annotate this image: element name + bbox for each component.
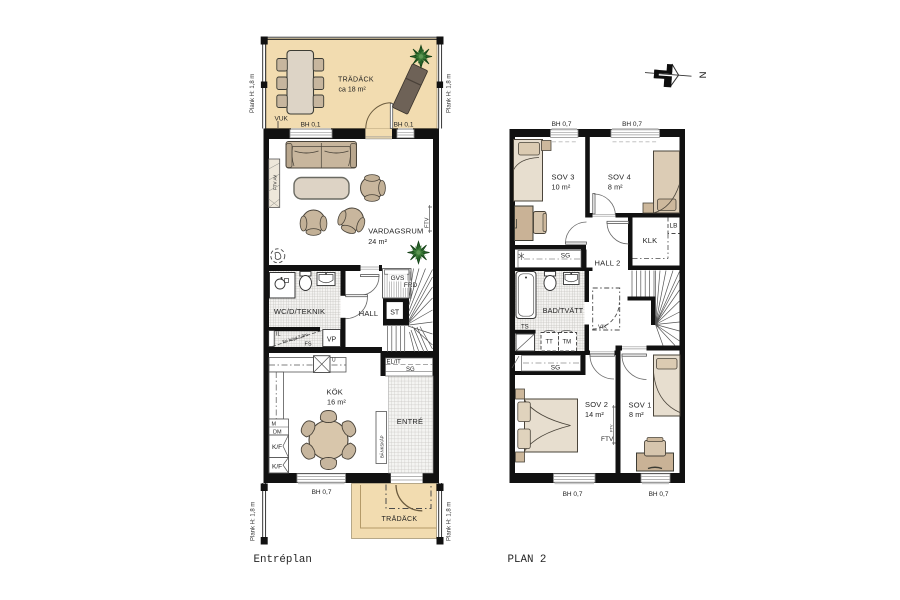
svg-text:TRÄDÄCK: TRÄDÄCK [382, 515, 418, 523]
svg-text:ST: ST [390, 310, 400, 317]
svg-text:KÖK: KÖK [327, 388, 343, 397]
svg-text:U: U [332, 358, 336, 364]
svg-text:LB: LB [670, 223, 678, 230]
svg-text:BH 0,7: BH 0,7 [312, 489, 332, 496]
svg-text:M: M [272, 422, 277, 428]
svg-text:FTV: FTV [609, 424, 614, 432]
svg-text:10 m²: 10 m² [552, 183, 571, 192]
svg-text:SG: SG [561, 253, 570, 260]
svg-text:Plank H: 1,8 m: Plank H: 1,8 m [251, 502, 257, 541]
svg-text:ca 18 m²: ca 18 m² [339, 87, 367, 94]
svg-text:SOV 2: SOV 2 [585, 400, 608, 409]
svg-text:HALL: HALL [359, 309, 379, 318]
svg-text:VUK: VUK [275, 116, 289, 123]
svg-text:VP: VP [327, 336, 337, 343]
svg-text:TRÄDÄCK: TRÄDÄCK [338, 76, 374, 84]
svg-text:FS: FS [304, 342, 311, 348]
svg-text:IL: IL [276, 332, 281, 338]
svg-text:BH 0,7: BH 0,7 [622, 121, 642, 128]
svg-text:FTV: FTV [425, 217, 431, 228]
svg-text:VARDAGSRUM: VARDAGSRUM [368, 227, 423, 236]
svg-text:SG: SG [406, 367, 415, 373]
svg-text:BH 0,1: BH 0,1 [301, 122, 321, 129]
svg-text:KLK: KLK [643, 236, 658, 245]
svg-text:BH 0,7: BH 0,7 [563, 491, 583, 498]
svg-text:BÄNKSKÅP: BÄNKSKÅP [380, 435, 385, 458]
svg-text:Plank H: 1,8 m: Plank H: 1,8 m [250, 74, 256, 113]
svg-text:SOV 3: SOV 3 [552, 173, 575, 182]
svg-text:SG: SG [551, 365, 560, 372]
svg-text:BAD/TVÄTT: BAD/TVÄTT [543, 306, 584, 315]
svg-text:SOV 1: SOV 1 [629, 401, 652, 410]
svg-text:K/F: K/F [272, 464, 282, 471]
svg-text:BH 0,7: BH 0,7 [649, 491, 669, 498]
svg-text:TM: TM [563, 340, 572, 346]
svg-text:Plank H: 1,8 m: Plank H: 1,8 m [447, 74, 453, 113]
svg-text:TS: TS [521, 325, 529, 331]
svg-text:K/F: K/F [272, 444, 282, 451]
svg-text:24 m²: 24 m² [368, 237, 387, 246]
svg-text:14 m²: 14 m² [585, 410, 604, 419]
svg-text:VIK: VIK [598, 325, 607, 331]
svg-text:WC/D/TEKNIK: WC/D/TEKNIK [274, 307, 325, 316]
svg-text:N: N [697, 72, 708, 79]
svg-text:Plank H: 1,8 m: Plank H: 1,8 m [447, 502, 453, 541]
svg-text:ENTRÉ: ENTRÉ [397, 417, 423, 426]
svg-text:SOV 4: SOV 4 [608, 173, 631, 182]
svg-text:FTV AV: FTV AV [273, 175, 278, 190]
svg-text:EL/IT: EL/IT [387, 360, 402, 366]
svg-text:PLAN 2: PLAN 2 [508, 554, 547, 566]
svg-text:Entréplan: Entréplan [254, 554, 312, 566]
svg-text:BH 0,7: BH 0,7 [552, 121, 572, 128]
svg-text:BH 0,1: BH 0,1 [394, 122, 414, 129]
svg-text:8 m²: 8 m² [629, 410, 644, 419]
svg-text:TT: TT [546, 340, 554, 346]
svg-text:FTV: FTV [601, 436, 614, 443]
svg-text:8 m²: 8 m² [608, 183, 623, 192]
svg-text:HALL 2: HALL 2 [595, 259, 621, 268]
svg-text:16 m²: 16 m² [327, 398, 346, 407]
